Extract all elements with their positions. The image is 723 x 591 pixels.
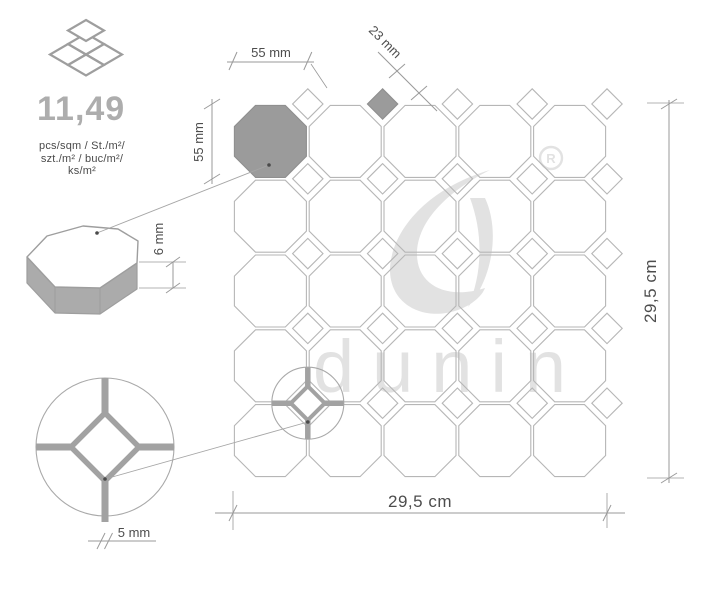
dim-label-5mm: 5 mm xyxy=(118,525,151,540)
dim-label-55mm-left: 55 mm xyxy=(191,122,206,162)
brand-watermark: dunin R xyxy=(313,147,584,408)
dim-label-295cm-bottom: 29,5 cm xyxy=(388,492,452,511)
dimension-octagon-height: 55 mm xyxy=(191,99,220,184)
octagon-tile xyxy=(234,330,306,402)
diamond-tile xyxy=(293,238,323,268)
octagon-tile xyxy=(459,105,531,177)
diamond-tile xyxy=(517,238,547,268)
dimension-thickness: 6 mm xyxy=(139,223,186,293)
octagon-tile xyxy=(534,255,606,327)
dim-label-6mm: 6 mm xyxy=(151,223,166,256)
diamond-tile-highlighted xyxy=(367,89,397,119)
octagon-tile xyxy=(384,405,456,477)
octagon-tile xyxy=(459,405,531,477)
dimension-grout: 5 mm xyxy=(88,525,156,549)
diamond-tile xyxy=(517,164,547,194)
diamond-tile xyxy=(293,89,323,119)
grout-junction-highlight xyxy=(272,367,344,439)
octagon-tile xyxy=(459,180,531,252)
octagon-tile xyxy=(234,180,306,252)
diamond-tile xyxy=(592,164,622,194)
technical-drawing: dunin R xyxy=(0,0,723,591)
diamond-tile xyxy=(592,313,622,343)
octagon-tile xyxy=(309,405,381,477)
diamond-tile xyxy=(592,89,622,119)
dimension-sheet-height: 29,5 cm xyxy=(641,99,684,483)
tile-3d-view xyxy=(27,226,138,314)
octagon-tile xyxy=(459,255,531,327)
dim-label-295cm-right: 29,5 cm xyxy=(641,259,660,323)
diamond-tile xyxy=(367,164,397,194)
octagon-tile xyxy=(534,405,606,477)
diamond-tile xyxy=(592,388,622,418)
octagon-tile xyxy=(309,180,381,252)
watermark-brand-text: dunin xyxy=(313,325,584,408)
octagon-tile xyxy=(534,105,606,177)
diamond-tile xyxy=(517,89,547,119)
octagon-tile xyxy=(309,105,381,177)
octagon-tile xyxy=(534,180,606,252)
octagon-tile xyxy=(234,255,306,327)
svg-text:R: R xyxy=(546,151,556,166)
dimension-octagon-width: 55 mm xyxy=(227,45,327,88)
diamond-tile xyxy=(293,164,323,194)
dim-label-23mm: 23 mm xyxy=(366,22,405,61)
octagon-tile xyxy=(309,255,381,327)
octagon-tile xyxy=(234,405,306,477)
dim-label-55mm-top: 55 mm xyxy=(251,45,291,60)
dimension-sheet-width: 29,5 cm xyxy=(215,491,625,530)
spec-sheet: 11,49 pcs/sqm / St./m²/ szt./m² / buc/m²… xyxy=(0,0,723,591)
grout-detail-circle xyxy=(36,378,174,522)
octagon-tile xyxy=(384,105,456,177)
octagon-tile-highlighted xyxy=(234,105,306,177)
diamond-tile xyxy=(442,238,472,268)
diamond-tile xyxy=(592,238,622,268)
diamond-tile xyxy=(442,89,472,119)
